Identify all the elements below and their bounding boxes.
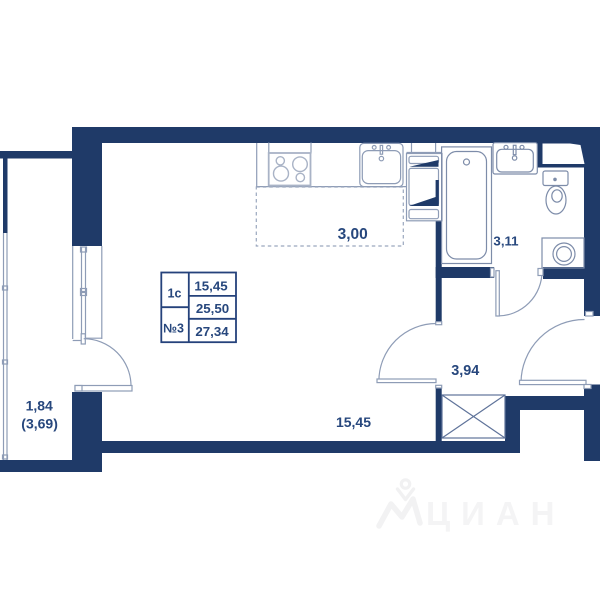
svg-text:1,84: 1,84 bbox=[26, 398, 53, 414]
svg-text:(3,69): (3,69) bbox=[21, 416, 58, 432]
svg-text:3,94: 3,94 bbox=[451, 363, 479, 379]
svg-text:1с: 1с bbox=[168, 286, 182, 300]
svg-text:ЦИАН: ЦИАН bbox=[426, 495, 566, 532]
svg-text:15,45: 15,45 bbox=[336, 414, 371, 430]
svg-text:25,50: 25,50 bbox=[196, 301, 229, 316]
svg-text:3,11: 3,11 bbox=[493, 234, 519, 249]
svg-text:15,45: 15,45 bbox=[194, 278, 228, 293]
svg-text:3,00: 3,00 bbox=[338, 226, 368, 243]
svg-text:27,34: 27,34 bbox=[195, 324, 229, 339]
svg-text:№3: №3 bbox=[163, 321, 184, 335]
